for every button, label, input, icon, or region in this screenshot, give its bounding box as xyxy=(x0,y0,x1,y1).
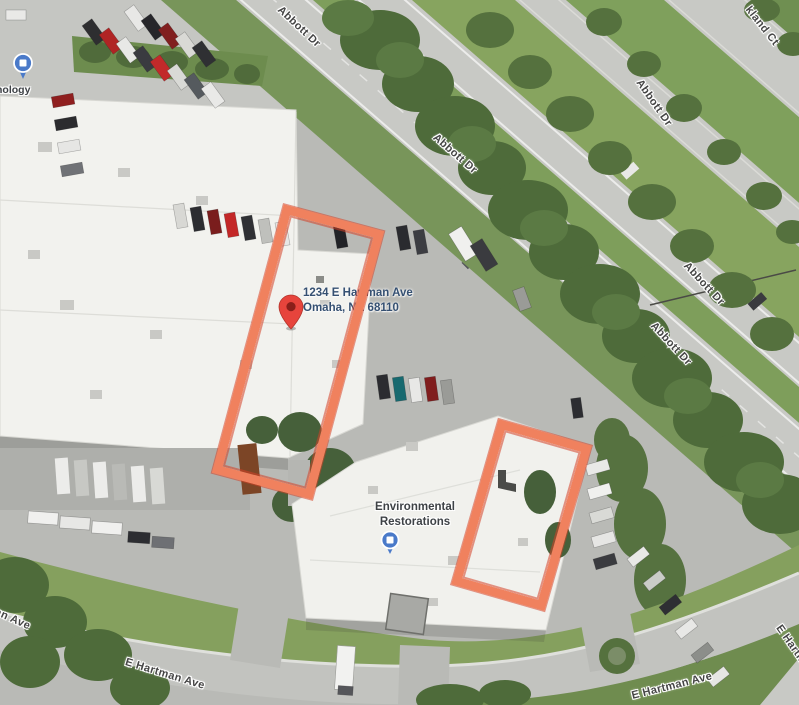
shed xyxy=(386,594,429,635)
poi-label-topleft-fragment: nology xyxy=(0,83,30,98)
poi-name-line2: Restorations xyxy=(345,515,485,530)
map-canvas[interactable]: Abbott Dr Abbott Dr Abbott Dr Abbott Dr … xyxy=(0,0,799,705)
poi-name-line1: Environmental xyxy=(345,500,485,515)
poi-glyph xyxy=(20,60,27,67)
poi-glyph xyxy=(387,537,394,544)
white-truck xyxy=(334,645,355,695)
poi-label-environmental[interactable]: Environmental Restorations xyxy=(345,500,485,530)
